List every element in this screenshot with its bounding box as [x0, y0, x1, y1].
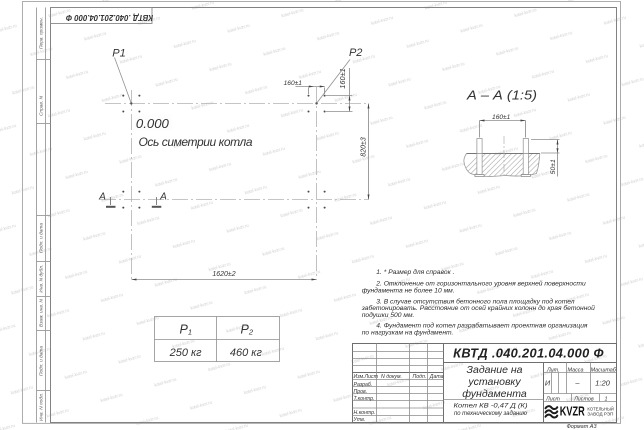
svg-text:Листов: Листов [573, 397, 594, 403]
svg-text:Взам. инв. N: Взам. инв. N [39, 299, 45, 327]
svg-text:Лист: Лист [545, 397, 560, 403]
svg-text:P2: P2 [349, 47, 362, 59]
svg-text:Утв.: Утв. [354, 417, 366, 423]
svg-text:1620±2: 1620±2 [212, 271, 235, 278]
svg-text:Пров.: Пров. [354, 389, 368, 395]
svg-text:P1: P1 [112, 47, 125, 59]
svg-text:И: И [545, 378, 551, 387]
svg-text:фундамента: фундамента [462, 388, 527, 400]
svg-text:N докум.: N докум. [381, 374, 402, 380]
svg-text:1:20: 1:20 [595, 379, 611, 388]
svg-text:Дата: Дата [429, 374, 444, 380]
svg-text:Справ. N: Справ. N [39, 95, 45, 116]
svg-text:4. Фундамент под котел разраба: 4. Фундамент под котел разрабатывает про… [376, 322, 588, 330]
svg-text:160±1: 160±1 [338, 68, 347, 89]
svg-text:ЗАВОД РЭП: ЗАВОД РЭП [587, 412, 613, 417]
svg-text:Котел КВ -0,47 Д (К): Котел КВ -0,47 Д (К) [454, 402, 528, 409]
svg-text:А – А (1:5): А – А (1:5) [466, 87, 537, 102]
svg-text:А: А [159, 192, 167, 203]
svg-text:забетонировать. Расстояние от: забетонировать. Расстояние от осей крайн… [361, 304, 595, 312]
svg-text:Подп. и дата: Подп. и дата [39, 223, 45, 253]
svg-text:Т.контр.: Т.контр. [354, 396, 375, 402]
svg-text:Перв. примен.: Перв. примен. [39, 17, 45, 49]
svg-text:Разраб.: Разраб. [354, 382, 373, 388]
svg-text:50±1: 50±1 [550, 159, 557, 174]
svg-text:А: А [98, 192, 106, 203]
svg-text:Инв. N подл.: Инв. N подл. [39, 393, 45, 421]
svg-text:КВТД .040.201.04.000 Ф: КВТД .040.201.04.000 Ф [453, 345, 604, 360]
svg-text:Н.контр.: Н.контр. [354, 410, 376, 416]
svg-text:KVZR: KVZR [560, 405, 585, 419]
svg-text:Подп. и дата: Подп. и дата [39, 346, 45, 376]
svg-text:1. * Размер для справок .: 1. * Размер для справок . [376, 268, 454, 276]
svg-text:820±3: 820±3 [360, 137, 367, 157]
svg-text:Лит.: Лит. [546, 367, 560, 373]
svg-text:Масса: Масса [568, 367, 584, 373]
svg-text:Ось симетрии котла: Ось симетрии котла [139, 135, 253, 149]
svg-text:подушки 500 мм.: подушки 500 мм. [362, 311, 415, 319]
svg-text:Изм.Лист: Изм.Лист [354, 374, 379, 380]
svg-text:160±1: 160±1 [492, 114, 511, 121]
svg-text:Задание на: Задание на [467, 364, 523, 376]
svg-text:1: 1 [605, 397, 608, 403]
svg-text:0.000: 0.000 [136, 116, 170, 131]
svg-text:160±1: 160±1 [284, 80, 303, 87]
svg-text:Формат А3: Формат А3 [566, 424, 597, 430]
svg-text:по нагрузкам на фундамент.: по нагрузкам на фундамент. [362, 329, 454, 337]
svg-text:КВТД .040.201.04.000 Ф: КВТД .040.201.04.000 Ф [65, 13, 153, 22]
svg-text:установку: установку [467, 376, 521, 388]
svg-text:250 кг: 250 кг [169, 347, 203, 359]
svg-text:–: – [574, 378, 580, 387]
svg-text:Инв. N дубл.: Инв. N дубл. [39, 265, 45, 293]
svg-text:фундамента не более 10 мм.: фундамента не более 10 мм. [362, 287, 455, 295]
svg-text:Подп.: Подп. [413, 374, 427, 380]
svg-text:по техническому заданию: по техническому заданию [454, 409, 527, 417]
svg-text:2. Отклонение от горизонтально: 2. Отклонение от горизонтального уровня … [375, 280, 586, 288]
svg-text:Масштаб: Масштаб [591, 367, 617, 373]
svg-text:460 кг: 460 кг [230, 347, 263, 359]
svg-text:3. В случае отсутствия бетонно: 3. В случае отсутствия бетонного пола пл… [376, 297, 574, 305]
